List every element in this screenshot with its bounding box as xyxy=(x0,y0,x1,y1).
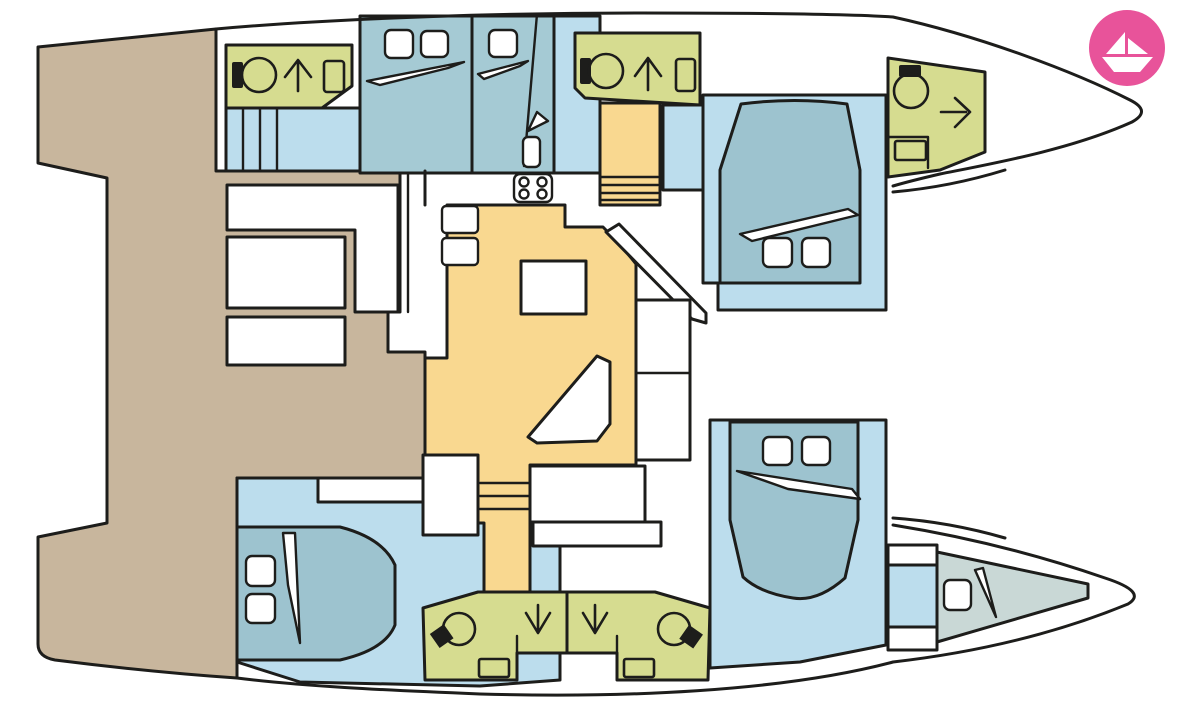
bow-locker xyxy=(888,627,937,650)
cockpit-bench xyxy=(227,317,345,365)
sink-icon xyxy=(442,238,478,265)
bed-pillow-icon xyxy=(385,30,413,58)
stairs-aft-top xyxy=(226,108,360,171)
bed-pillow-icon xyxy=(246,594,275,623)
cabin-mid-top-single xyxy=(472,14,554,173)
sofa-bench-low xyxy=(533,522,661,546)
cabin-forward-top xyxy=(703,95,886,310)
sink-icon xyxy=(442,206,478,233)
stove-icon xyxy=(514,174,552,202)
cabin-floor xyxy=(360,16,472,173)
island-bed xyxy=(730,422,858,599)
bed-pillow-icon xyxy=(489,30,517,57)
bathroom-aft-bottom-right xyxy=(567,592,710,680)
crew-berth-bow-bottom xyxy=(888,545,1088,650)
bow-corridor xyxy=(888,565,937,627)
stairs-floor xyxy=(226,108,360,171)
stairs-saloon-top xyxy=(600,103,660,205)
bed-pillow-icon xyxy=(944,580,971,610)
sofa-seat xyxy=(636,300,690,460)
corridor-forward-top xyxy=(663,105,706,190)
bed-pillow-icon xyxy=(421,31,448,57)
galley-cabinet xyxy=(423,455,478,535)
paper-boat-logo[interactable] xyxy=(1089,10,1165,86)
bed-pillow-icon xyxy=(802,238,830,267)
cabin-forward-bottom xyxy=(710,420,886,668)
cabin-mid-top-double xyxy=(360,16,472,173)
stairs-floor xyxy=(600,103,660,205)
logo-circle xyxy=(1089,10,1165,86)
bathroom-floor xyxy=(226,45,352,108)
bathroom-floor xyxy=(575,33,700,105)
sofa-bench xyxy=(530,466,645,522)
bow-locker xyxy=(888,545,937,565)
bed-pillow-icon xyxy=(763,437,792,465)
stove-icon xyxy=(514,174,552,202)
bathroom-mid-top xyxy=(575,33,700,105)
bathroom-bow-top xyxy=(888,58,985,177)
deck-plan-canvas xyxy=(0,0,1181,709)
seat xyxy=(523,137,540,167)
bathroom-aft-top xyxy=(226,45,352,108)
saloon xyxy=(423,171,706,592)
bed-pillow-icon xyxy=(763,238,792,267)
bed-pillow-icon xyxy=(802,437,830,465)
cockpit-table xyxy=(227,237,345,308)
saloon-table xyxy=(521,261,586,314)
deck-plan xyxy=(0,0,1181,709)
cabin-aft-bottom xyxy=(237,527,395,660)
bed-pillow-icon xyxy=(246,556,275,586)
